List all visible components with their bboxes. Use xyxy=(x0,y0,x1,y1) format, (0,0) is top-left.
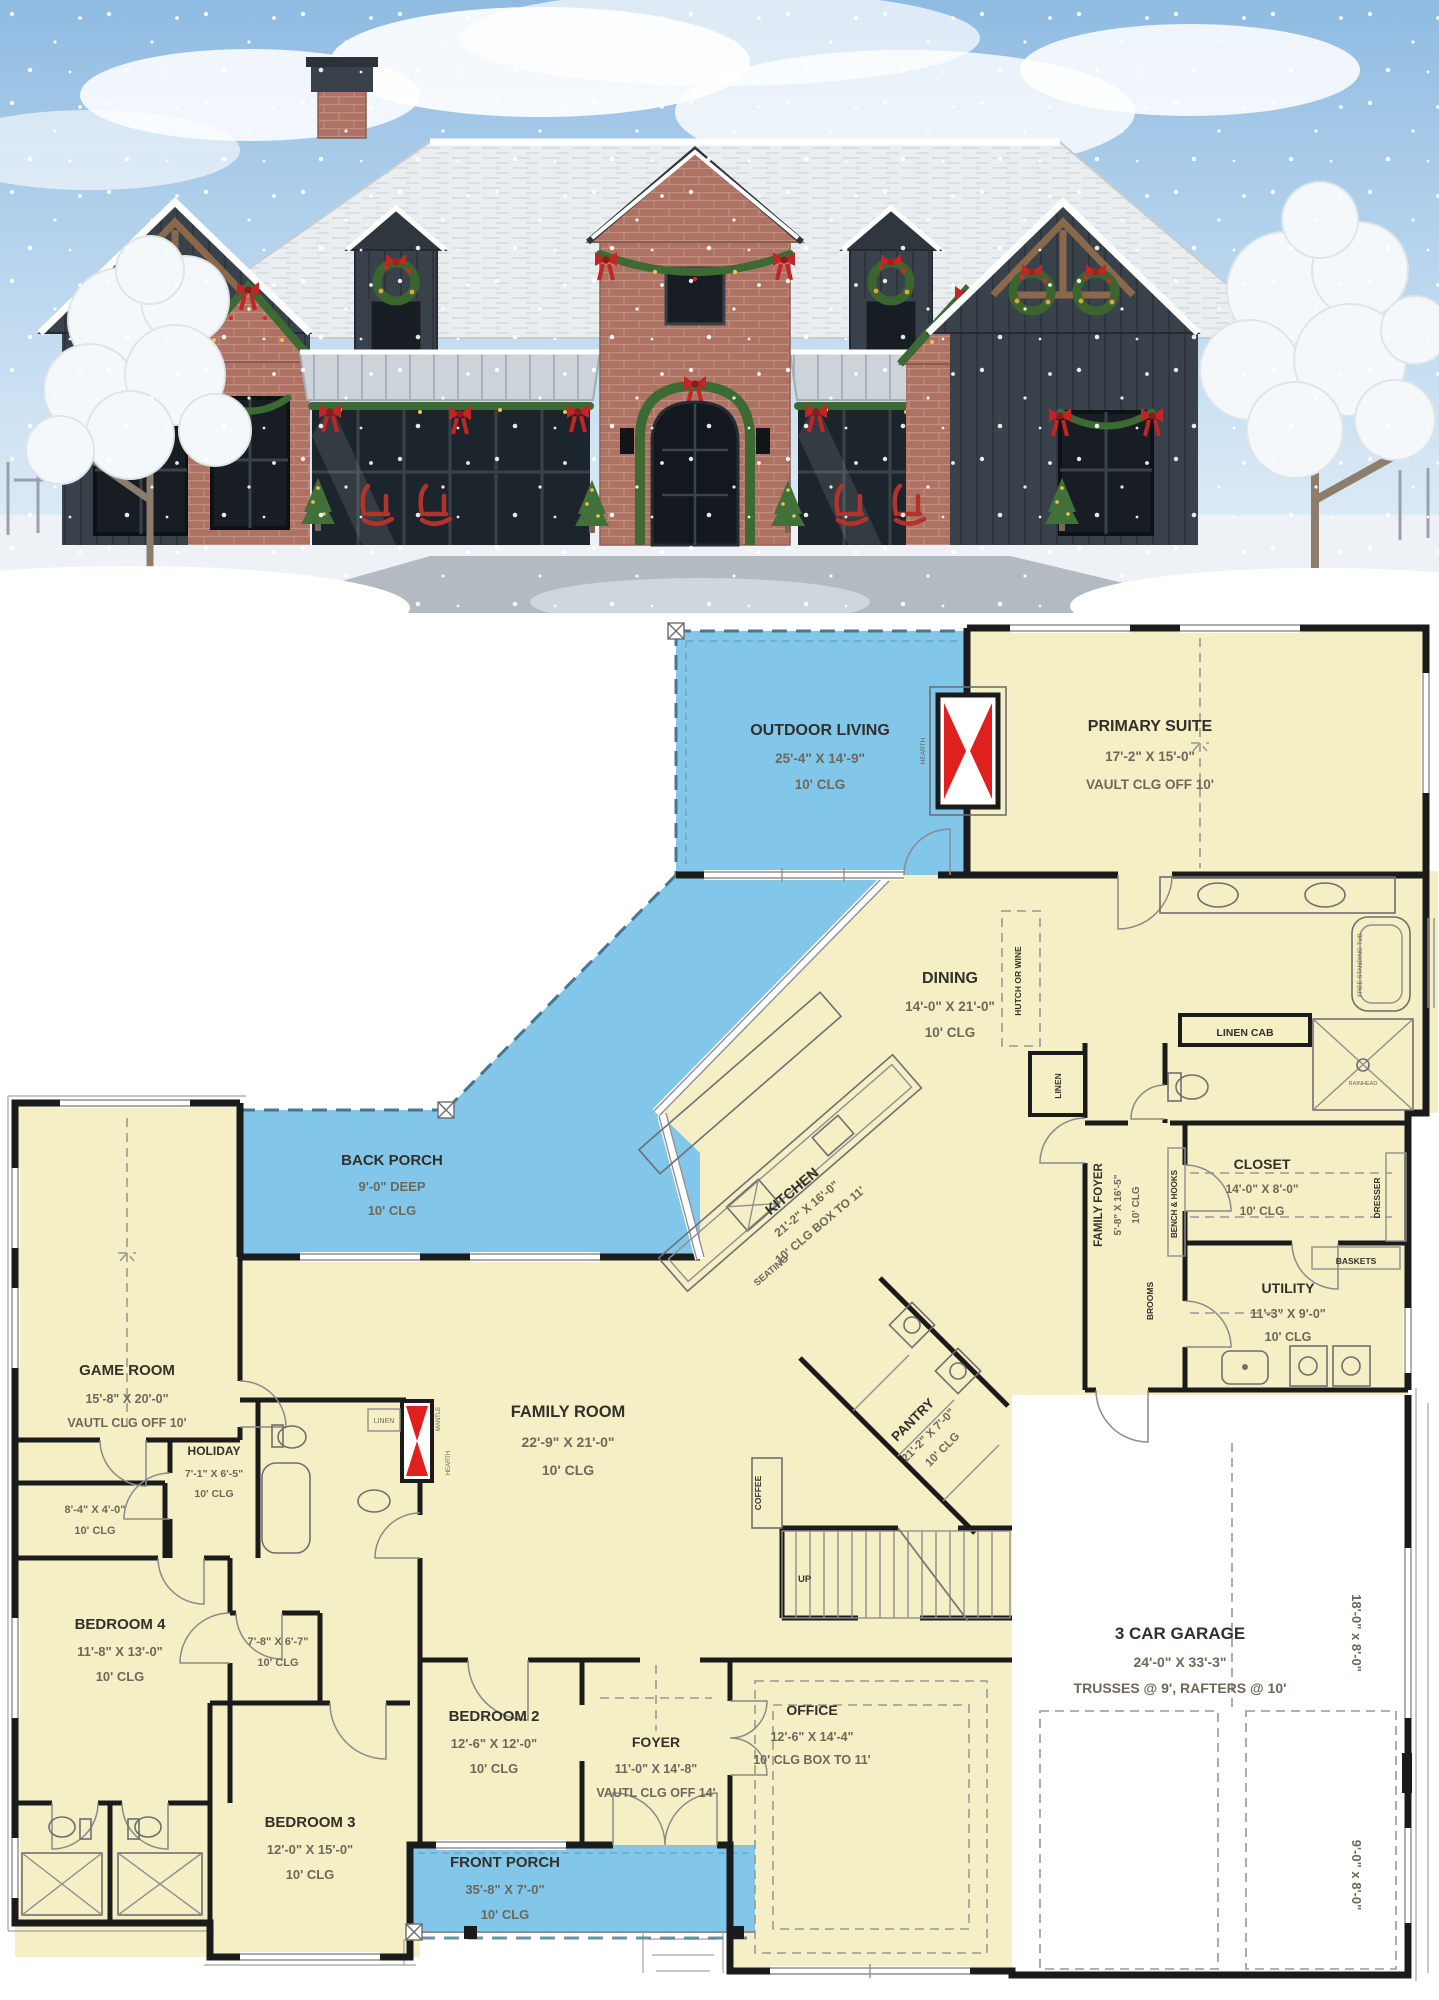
svg-text:LINEN CAB: LINEN CAB xyxy=(1216,1027,1274,1039)
svg-text:VAULT CLG OFF 10': VAULT CLG OFF 10' xyxy=(1086,777,1214,792)
svg-text:BACK PORCH: BACK PORCH xyxy=(341,1152,443,1169)
svg-text:10' CLG: 10' CLG xyxy=(286,1867,335,1882)
svg-text:11'-3" X 9'-0": 11'-3" X 9'-0" xyxy=(1250,1307,1326,1321)
svg-text:VAUTL CLG OFF 10': VAUTL CLG OFF 10' xyxy=(67,1416,186,1430)
up-label: UP xyxy=(798,1574,812,1585)
svg-text:12'-0" X 15'-0": 12'-0" X 15'-0" xyxy=(267,1842,353,1857)
snowfall xyxy=(0,0,1439,613)
linen-label-2: LINEN xyxy=(374,1418,395,1425)
svg-text:10' CLG: 10' CLG xyxy=(74,1525,115,1537)
dresser-label: DRESSER xyxy=(1372,1177,1382,1218)
svg-text:OUTDOOR LIVING: OUTDOOR LIVING xyxy=(750,722,890,739)
linen-label: LINEN xyxy=(1053,1073,1063,1099)
svg-text:22'-9" X 21'-0": 22'-9" X 21'-0" xyxy=(521,1434,614,1450)
coffee-label: COFFEE xyxy=(753,1475,763,1510)
room-back-porch xyxy=(240,1110,700,1257)
svg-text:BEDROOM 2: BEDROOM 2 xyxy=(449,1708,540,1725)
svg-text:10' CLG: 10' CLG xyxy=(795,777,845,792)
hearth-label: HEARTH xyxy=(920,737,927,764)
svg-text:10' CLG BOX TO 11': 10' CLG BOX TO 11' xyxy=(753,1753,871,1767)
svg-text:FOYER: FOYER xyxy=(632,1734,680,1750)
svg-text:FAMILY FOYER: FAMILY FOYER xyxy=(1093,1162,1105,1246)
svg-text:3 CAR GARAGE: 3 CAR GARAGE xyxy=(1115,1624,1245,1643)
bench-hooks-label: BENCH & HOOKS xyxy=(1170,1169,1179,1238)
room-label-primary-suite: PRIMARY SUITE 17'-2" X 15'-0" VAULT CLG … xyxy=(1086,718,1214,792)
hearth-label-2: HEARTH xyxy=(446,1451,452,1476)
svg-text:BEDROOM 3: BEDROOM 3 xyxy=(265,1814,356,1831)
svg-text:17'-2" X 15'-0": 17'-2" X 15'-0" xyxy=(1105,749,1195,764)
svg-text:10' CLG: 10' CLG xyxy=(542,1462,594,1478)
hutch-or-wine-label: HUTCH OR WINE xyxy=(1013,946,1023,1016)
svg-text:GAME ROOM: GAME ROOM xyxy=(79,1362,175,1379)
svg-text:HOLIDAY: HOLIDAY xyxy=(188,1444,241,1458)
house-plan-page: UP LINEN CAB xyxy=(0,0,1439,2000)
svg-text:10' CLG: 10' CLG xyxy=(481,1907,530,1922)
svg-text:24'-0" X 33'-3": 24'-0" X 33'-3" xyxy=(1133,1654,1226,1670)
svg-text:9'-0" DEEP: 9'-0" DEEP xyxy=(358,1179,425,1194)
rainhead-label: RAINHEAD xyxy=(1349,1081,1378,1087)
svg-text:OFFICE: OFFICE xyxy=(786,1702,837,1718)
svg-text:BEDROOM 4: BEDROOM 4 xyxy=(75,1616,167,1633)
svg-text:11'-8" X 13'-0": 11'-8" X 13'-0" xyxy=(77,1644,163,1659)
svg-text:7'-8" X 6'-7": 7'-8" X 6'-7" xyxy=(248,1636,309,1648)
garage-door-small-label: 9'-0" x 8'-0" xyxy=(1349,1840,1364,1911)
svg-text:DINING: DINING xyxy=(922,970,978,987)
svg-text:11'-0" X 14'-8": 11'-0" X 14'-8" xyxy=(615,1762,698,1776)
svg-text:10' CLG: 10' CLG xyxy=(470,1761,519,1776)
house-photo xyxy=(0,0,1439,613)
linen-cab: LINEN CAB xyxy=(1180,1015,1310,1045)
svg-text:CLOSET: CLOSET xyxy=(1234,1156,1291,1172)
mantle-label: MANTLE xyxy=(436,1407,442,1431)
svg-text:VAUTL CLG OFF 14': VAUTL CLG OFF 14' xyxy=(596,1786,715,1800)
svg-text:10' CLG: 10' CLG xyxy=(1265,1330,1312,1344)
svg-text:10' CLG: 10' CLG xyxy=(96,1669,145,1684)
svg-text:10' CLG: 10' CLG xyxy=(925,1025,975,1040)
outdoor-fireplace xyxy=(930,687,1006,815)
svg-text:14'-0" X 8'-0": 14'-0" X 8'-0" xyxy=(1225,1182,1298,1196)
svg-text:12'-6" X 12'-0": 12'-6" X 12'-0" xyxy=(451,1736,537,1751)
svg-text:10' CLG: 10' CLG xyxy=(1240,1204,1285,1218)
svg-text:FAMILY ROOM: FAMILY ROOM xyxy=(511,1403,626,1421)
svg-text:35'-8" X 7'-0": 35'-8" X 7'-0" xyxy=(465,1882,544,1897)
svg-text:8'-4" X 4'-0": 8'-4" X 4'-0" xyxy=(65,1504,126,1516)
floor-plan: UP LINEN CAB xyxy=(0,613,1439,2000)
svg-text:10' CLG: 10' CLG xyxy=(368,1203,417,1218)
svg-text:10' CLG: 10' CLG xyxy=(257,1657,298,1669)
svg-text:10' CLG: 10' CLG xyxy=(1131,1186,1142,1224)
svg-text:15'-8" X 20'-0": 15'-8" X 20'-0" xyxy=(85,1392,168,1406)
svg-text:14'-0" X 21'-0": 14'-0" X 21'-0" xyxy=(905,999,995,1014)
svg-text:FRONT PORCH: FRONT PORCH xyxy=(450,1854,560,1871)
svg-text:12'-6" X 14'-4": 12'-6" X 14'-4" xyxy=(770,1730,853,1744)
baskets-label: BASKETS xyxy=(1336,1256,1377,1266)
svg-text:5'-8" X 16'-5": 5'-8" X 16'-5" xyxy=(1113,1174,1124,1235)
brooms-label: BROOMS xyxy=(1145,1282,1155,1321)
svg-text:7'-1" X 6'-5": 7'-1" X 6'-5" xyxy=(185,1468,243,1480)
svg-text:10' CLG: 10' CLG xyxy=(194,1488,233,1500)
svg-text:25'-4" X 14'-9": 25'-4" X 14'-9" xyxy=(775,751,865,766)
svg-text:UTILITY: UTILITY xyxy=(1262,1280,1316,1296)
svg-text:TRUSSES @ 9', RAFTERS @ 10': TRUSSES @ 9', RAFTERS @ 10' xyxy=(1074,1680,1287,1696)
svg-text:PRIMARY SUITE: PRIMARY SUITE xyxy=(1088,718,1213,735)
garage-door-large-label: 18'-0" x 8'-0" xyxy=(1349,1594,1364,1672)
free-standing-tub-label: FREE STANDING TUB xyxy=(1357,933,1364,997)
